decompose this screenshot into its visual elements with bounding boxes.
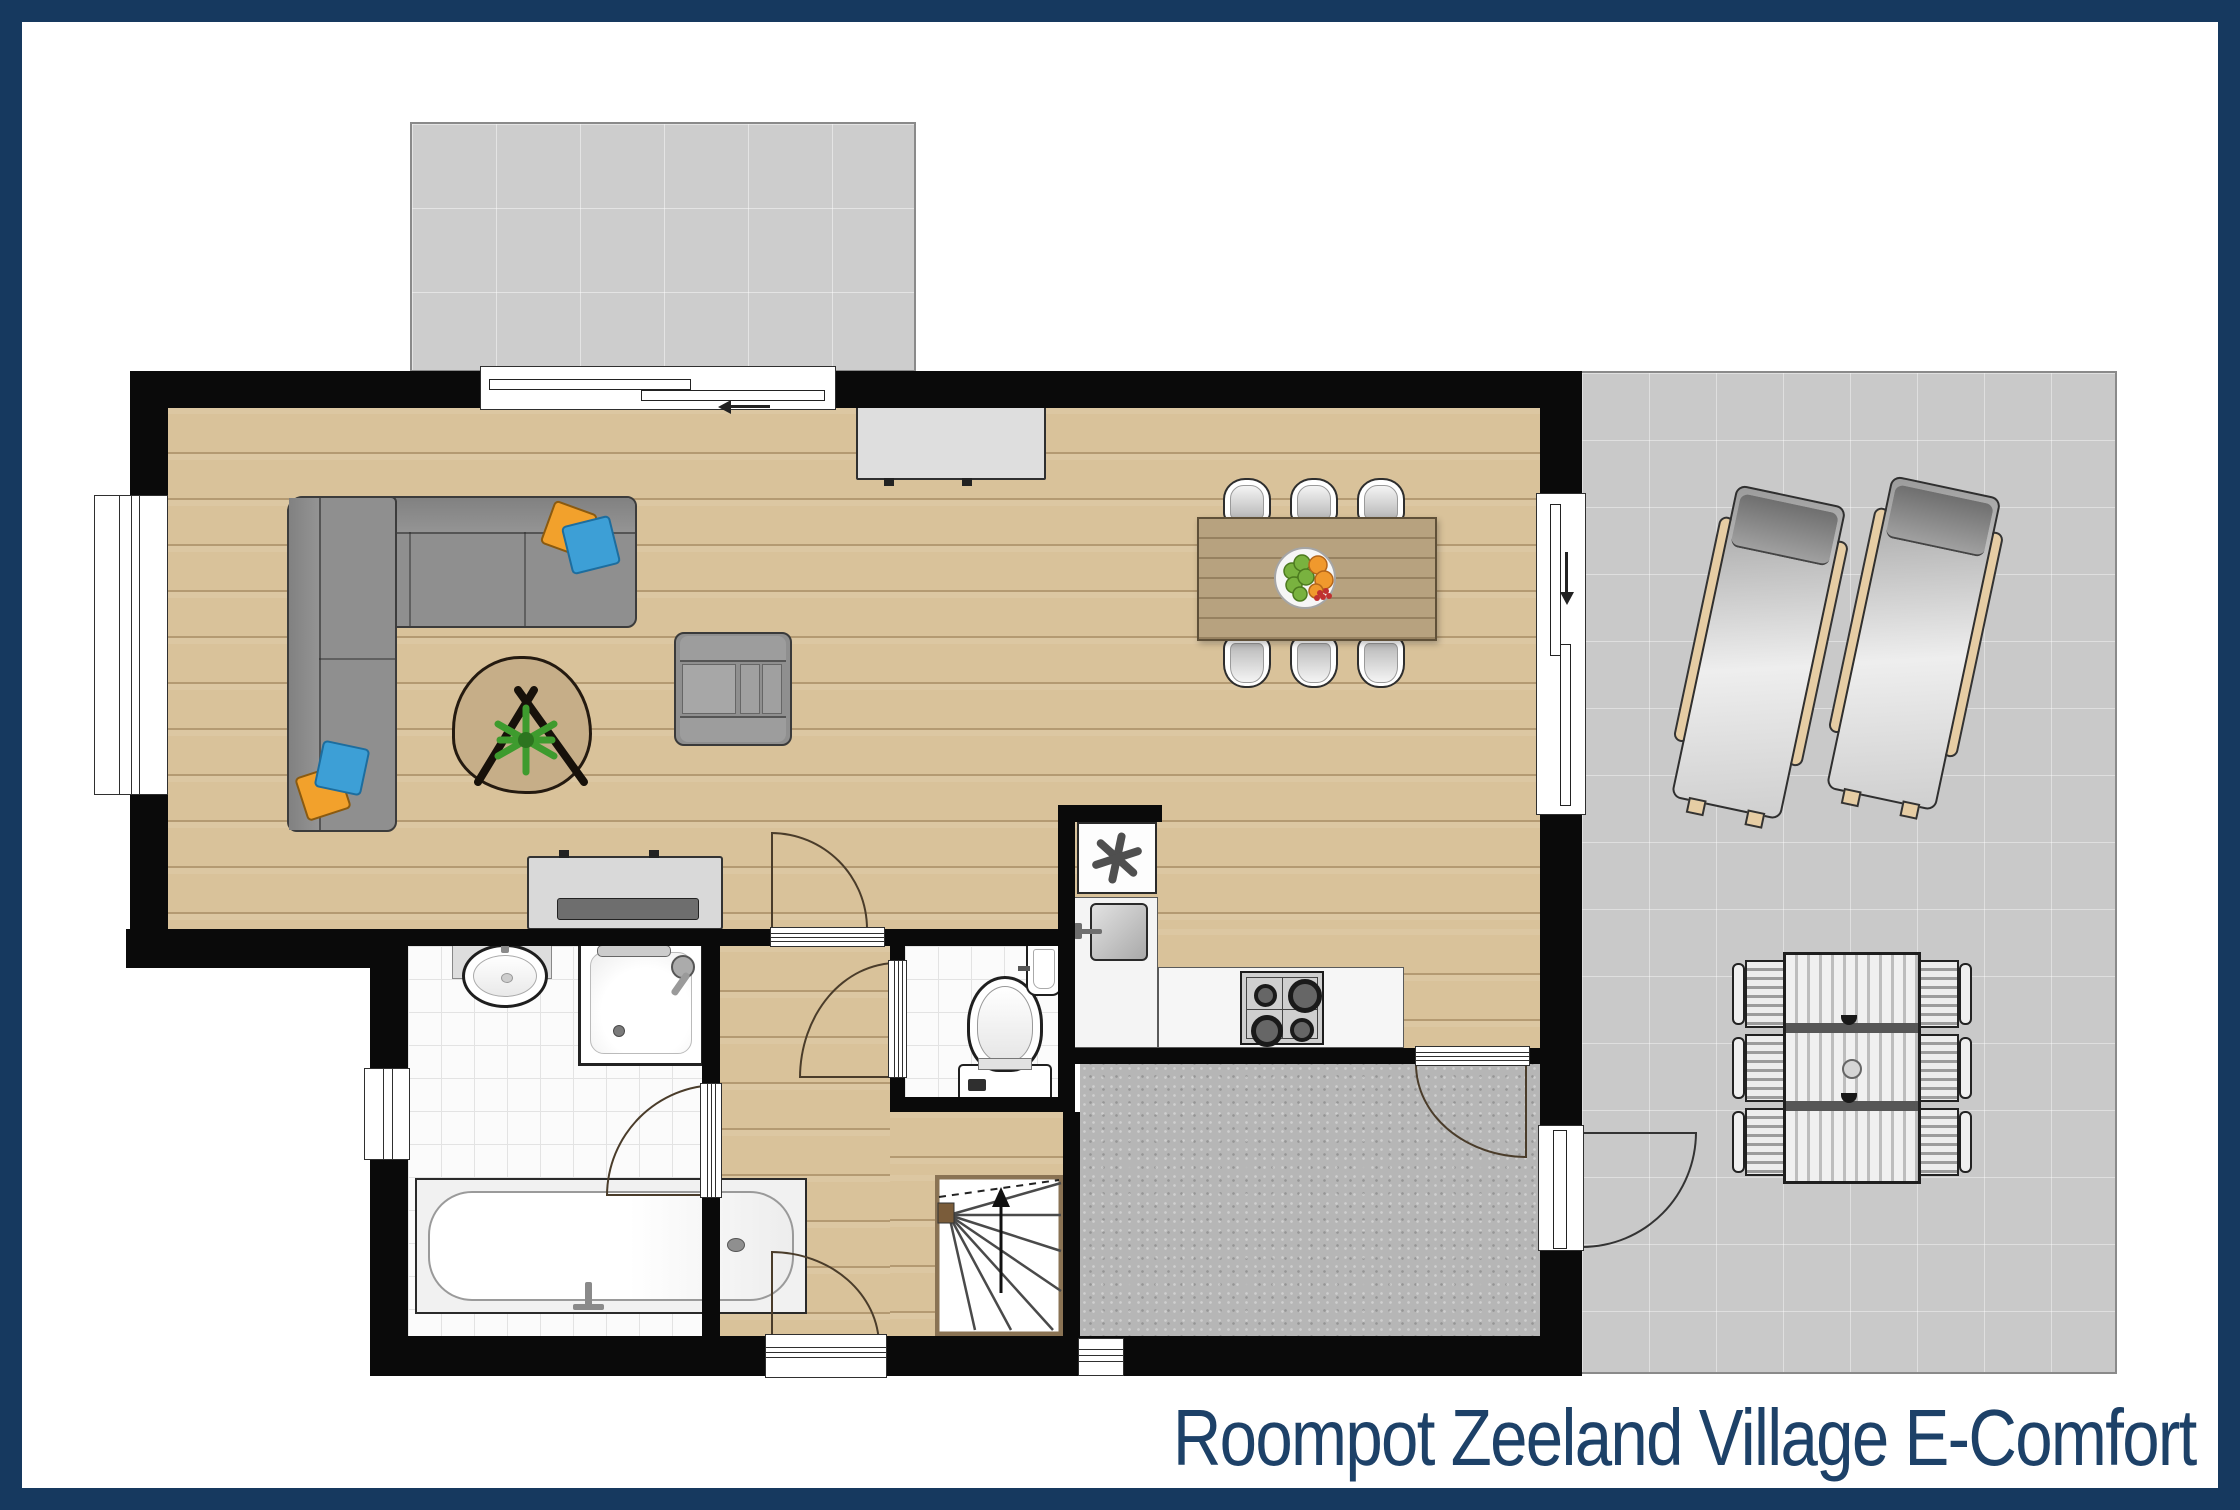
wall-living-bath: [408, 929, 770, 946]
sliding-door-right: [1536, 493, 1586, 815]
terrace: [1580, 371, 2117, 1374]
wall-wc-bottom: [890, 1097, 1075, 1112]
wall-kitchen-entrance: [1058, 1048, 1418, 1064]
toilet-lid-hinge: [978, 1058, 1032, 1070]
shower: [578, 940, 704, 1066]
kitchen-sink: [1090, 903, 1148, 961]
plant-icon: [458, 660, 594, 796]
back-door: [765, 1334, 887, 1378]
washbasin: [462, 944, 548, 1008]
outdoor-chair: [1915, 960, 1959, 1028]
outdoor-table: [1783, 952, 1921, 1184]
wall-kitchen-entrance-2: [1528, 1048, 1542, 1064]
door-bathroom: [700, 1083, 722, 1198]
freezer: [1077, 822, 1157, 894]
fruit-bowl-icon: [1272, 545, 1338, 611]
door-wc: [888, 960, 907, 1078]
wc-basin: [1026, 942, 1062, 996]
parasol-hole-icon: [1842, 1059, 1862, 1079]
window-bottom-small: [1078, 1338, 1124, 1376]
burner-icon: [1254, 984, 1277, 1007]
window-bathroom: [364, 1068, 410, 1160]
front-door: [1538, 1125, 1584, 1251]
hob: [1240, 971, 1324, 1045]
wall-top: [130, 371, 1582, 408]
floorplan-canvas: Roompot Zeeland Village E-Comfort: [0, 0, 2240, 1510]
wall-living-wc: [885, 929, 1075, 946]
wall-stairs-right: [1063, 1112, 1080, 1376]
wall-nook-left: [1058, 805, 1075, 967]
freezer-icon: [1091, 832, 1143, 884]
burner-icon: [1290, 1018, 1314, 1042]
hallway-floor-2: [890, 1112, 1063, 1175]
slider-arrow-left-icon: [718, 400, 770, 414]
door-living-hall: [770, 927, 885, 947]
outdoor-chair: [1915, 1108, 1959, 1176]
wall-living-bottom: [126, 929, 374, 968]
wall-wc-right: [1058, 946, 1075, 1112]
dining-chair: [1290, 636, 1338, 688]
burner-icon: [1288, 979, 1322, 1013]
outdoor-chair: [1915, 1034, 1959, 1102]
drain-icon: [727, 1238, 745, 1252]
plan-title: Roompot Zeeland Village E-Comfort: [1173, 1392, 2196, 1484]
cushion-blue-bottom: [314, 740, 371, 797]
stairs: [935, 1175, 1063, 1336]
hallway-floor-3: [890, 1175, 935, 1336]
bathtub: [415, 1178, 807, 1314]
drain-icon: [613, 1025, 625, 1037]
window-left: [94, 495, 168, 795]
door-kitchen-entrance: [1415, 1046, 1530, 1066]
shower-bar-icon: [597, 945, 671, 957]
slider-arrow-down-icon: [1560, 552, 1574, 606]
sliding-door-top: [480, 366, 836, 410]
faucet-icon: [1018, 966, 1030, 971]
dining-chair: [1223, 636, 1271, 688]
patio-top: [410, 122, 916, 372]
dining-chair: [1357, 636, 1405, 688]
armchair: [674, 632, 792, 746]
tv-sideboard: [527, 856, 723, 930]
burner-icon: [1251, 1015, 1283, 1047]
wall-bottom: [370, 1336, 1582, 1376]
sideboard: [856, 404, 1046, 480]
